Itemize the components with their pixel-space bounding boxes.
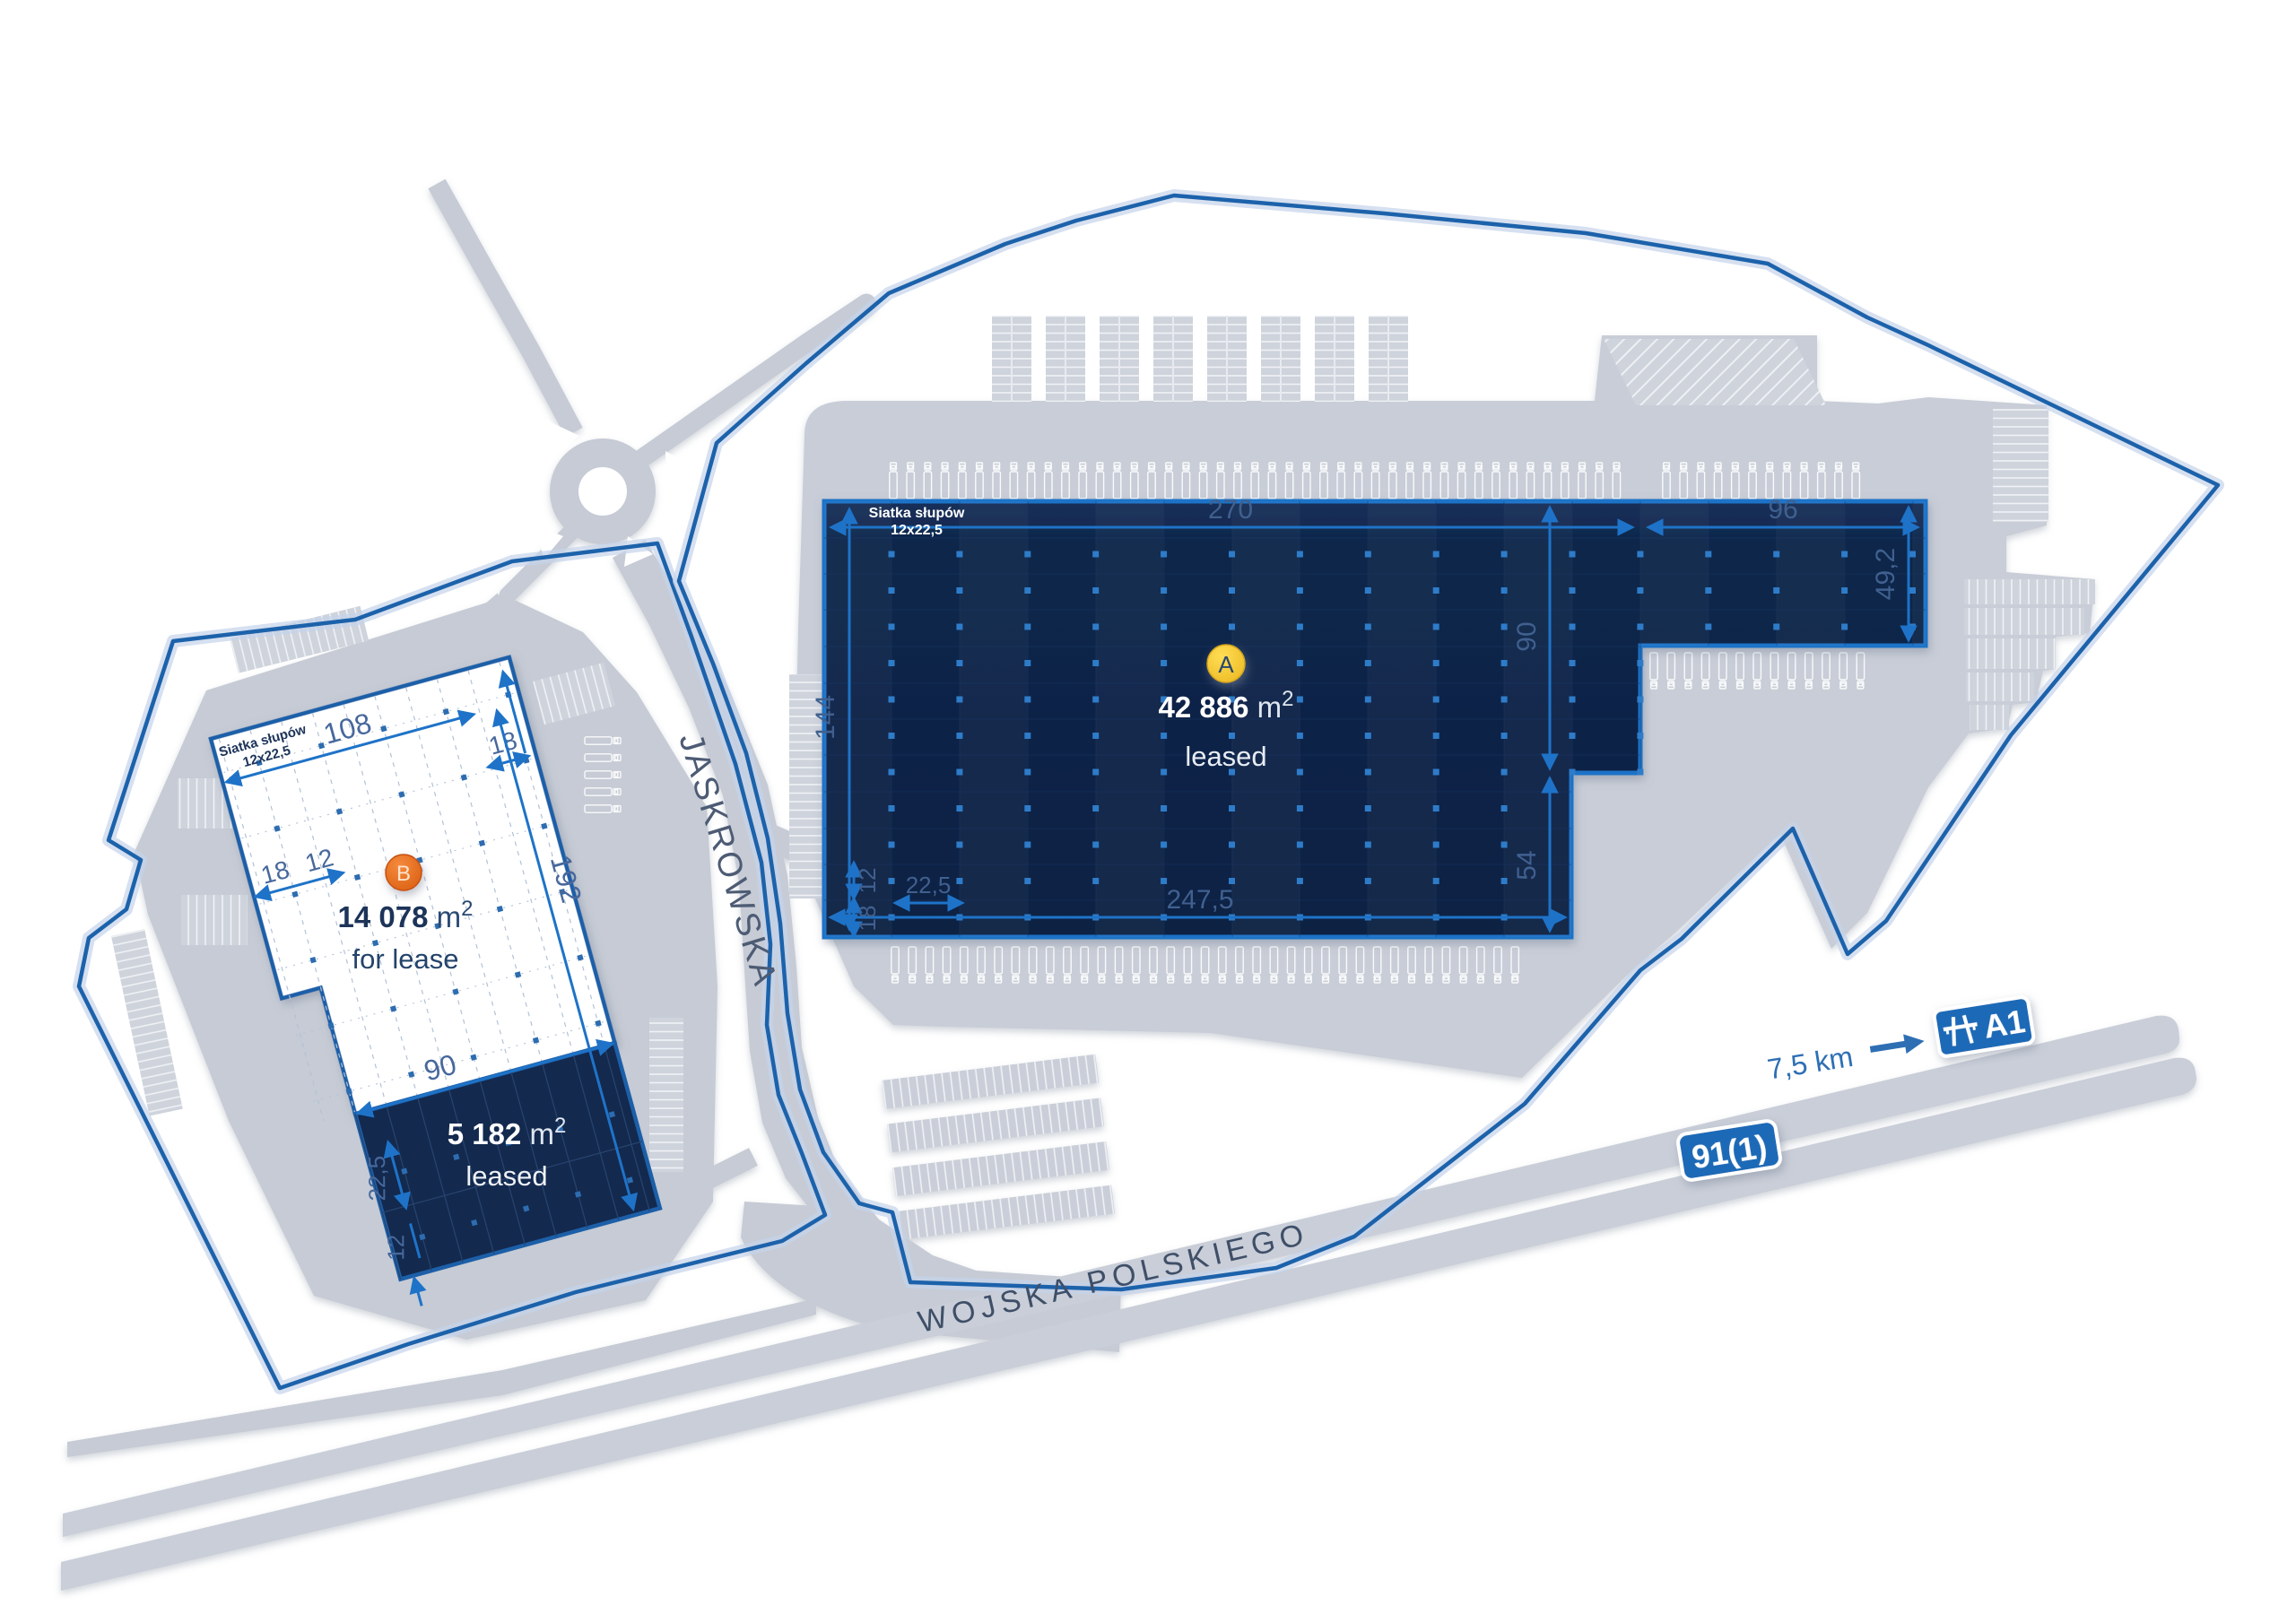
svg-text:for lease: for lease bbox=[352, 943, 459, 975]
svg-text:270: 270 bbox=[1208, 495, 1253, 525]
svg-text:12: 12 bbox=[382, 1235, 409, 1261]
svg-text:5 182 m2: 5 182 m2 bbox=[448, 1114, 567, 1150]
svg-text:leased: leased bbox=[1185, 741, 1266, 772]
svg-text:12x22,5: 12x22,5 bbox=[891, 523, 943, 538]
svg-text:B: B bbox=[396, 862, 411, 886]
svg-text:90: 90 bbox=[1512, 621, 1542, 651]
svg-text:12: 12 bbox=[854, 868, 881, 894]
svg-text:A1: A1 bbox=[1981, 1002, 2028, 1046]
svg-text:A: A bbox=[1218, 651, 1234, 678]
svg-text:42 886 m2: 42 886 m2 bbox=[1159, 687, 1294, 724]
svg-text:22,5: 22,5 bbox=[906, 872, 952, 898]
svg-text:144: 144 bbox=[811, 695, 840, 740]
svg-text:14 078 m2: 14 078 m2 bbox=[338, 897, 474, 933]
svg-text:247,5: 247,5 bbox=[1166, 885, 1233, 915]
svg-text:54: 54 bbox=[1512, 850, 1542, 880]
svg-text:49,2: 49,2 bbox=[1871, 548, 1900, 600]
svg-text:18: 18 bbox=[854, 906, 881, 932]
svg-text:96: 96 bbox=[1768, 495, 1797, 525]
svg-text:22,5: 22,5 bbox=[363, 1156, 390, 1202]
svg-text:leased: leased bbox=[465, 1160, 547, 1192]
svg-text:Siatka słupów: Siatka słupów bbox=[869, 506, 965, 521]
